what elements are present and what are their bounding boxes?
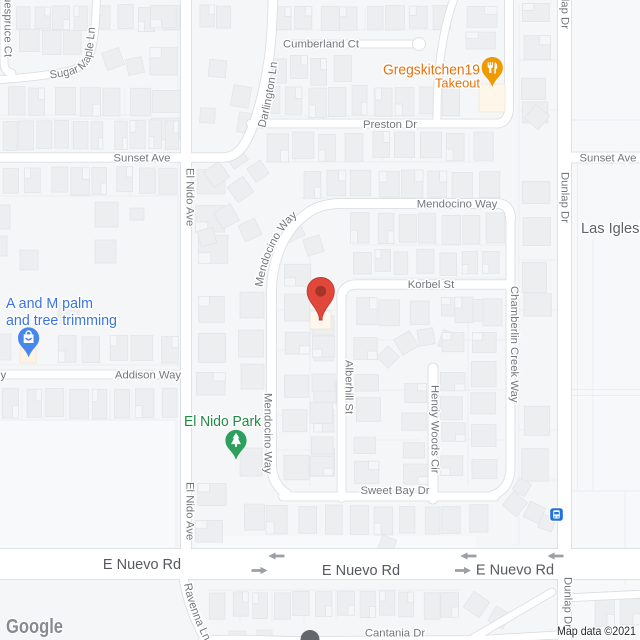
svg-text:Dunlap Dr: Dunlap Dr [562, 577, 574, 628]
svg-text:Dunlap Dr: Dunlap Dr [559, 172, 571, 223]
svg-text:Mendocino Way: Mendocino Way [262, 393, 274, 474]
svg-text:Cumberland Ct: Cumberland Ct [283, 39, 360, 51]
svg-text:Addison Way: Addison Way [115, 370, 181, 382]
svg-text:Sunset Ave: Sunset Ave [580, 153, 637, 165]
svg-text:Korbel St: Korbel St [408, 279, 455, 291]
svg-text:E Nuevo Rd: E Nuevo Rd [322, 563, 400, 579]
svg-text:El Nido Park: El Nido Park [184, 413, 261, 430]
svg-text:Sweet Bay Dr: Sweet Bay Dr [360, 485, 429, 497]
svg-text:Preston Dr: Preston Dr [363, 119, 417, 131]
svg-text:Las Iglesias: Las Iglesias [581, 221, 640, 237]
svg-text:El Nido Ave: El Nido Ave [184, 168, 196, 226]
svg-text:Takeout: Takeout [435, 76, 480, 91]
svg-text:A and M palm: A and M palm [6, 295, 93, 312]
svg-text:Sunset Ave: Sunset Ave [114, 153, 171, 165]
svg-text:y: y [1, 370, 7, 382]
svg-text:Hendy Woods Cir: Hendy Woods Cir [429, 385, 441, 474]
svg-text:Alberhill St: Alberhill St [343, 360, 355, 415]
svg-text:Mendocino Way: Mendocino Way [417, 199, 498, 211]
svg-text:Chamberlin Creek Way: Chamberlin Creek Way [508, 286, 520, 403]
svg-text:E Nuevo Rd: E Nuevo Rd [476, 563, 554, 579]
svg-text:Map data ©2021: Map data ©2021 [557, 625, 636, 638]
svg-text:Cantania Dr: Cantania Dr [365, 628, 426, 640]
svg-text:Bluespruce Ct: Bluespruce Ct [2, 0, 14, 58]
svg-text:El Nido Ave: El Nido Ave [184, 482, 196, 540]
svg-text:E Nuevo Rd: E Nuevo Rd [103, 557, 181, 573]
svg-text:and tree trimming: and tree trimming [6, 312, 117, 329]
svg-text:Dunlap Dr: Dunlap Dr [559, 0, 571, 29]
svg-text:Google: Google [6, 615, 63, 638]
